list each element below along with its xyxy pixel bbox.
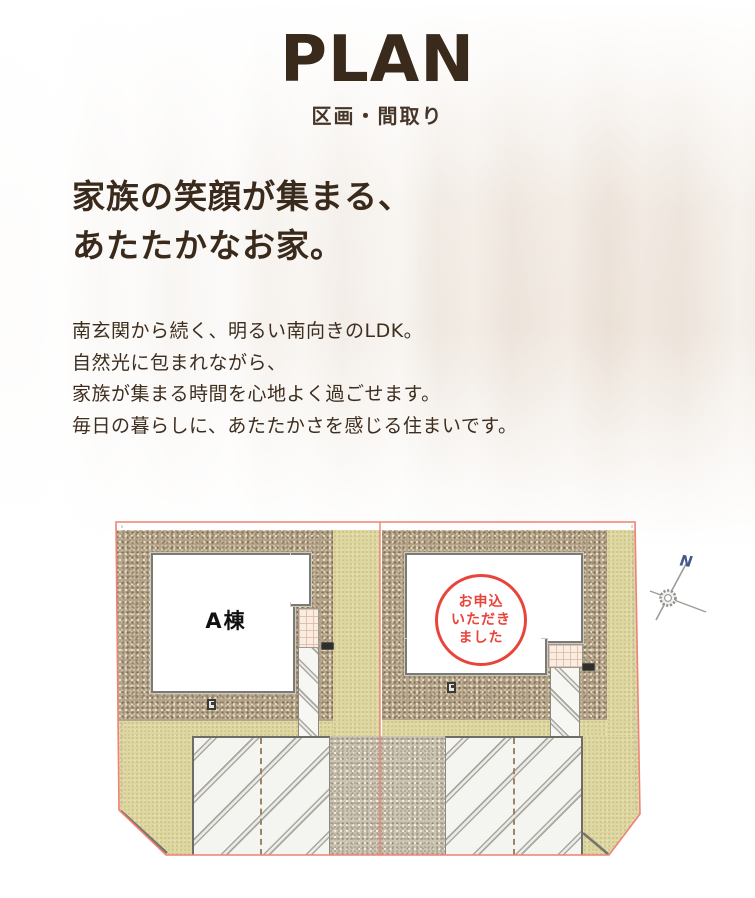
lot-a-building-seam-patch bbox=[288, 555, 294, 602]
section-header: PLAN 区画・間取り bbox=[0, 28, 755, 129]
lot-a-driveway-strip bbox=[333, 530, 380, 736]
lot-a-label-text: A棟 bbox=[205, 605, 246, 635]
stamp-line-2: いただき bbox=[451, 611, 511, 629]
intro-body-line-1: 南玄関から続く、明るい南向きのLDK。 bbox=[72, 316, 517, 348]
lot-a-label: A棟 bbox=[196, 606, 256, 634]
lot-a-garden-area bbox=[115, 736, 192, 855]
page-title: PLAN bbox=[0, 28, 755, 92]
plan-section-page: PLAN 区画・間取り 家族の笑顔が集まる、 あたたかなお家。 南玄関から続く、… bbox=[0, 0, 755, 898]
intro-heading-line-2: あたたかなお家。 bbox=[72, 221, 412, 270]
intro-heading-line-1: 家族の笑顔が集まる、 bbox=[72, 172, 412, 221]
stamp-line-3: ました bbox=[459, 629, 504, 647]
lot-b-utility-box-icon bbox=[447, 682, 456, 693]
lot-b-application-received-stamp: お申込 いただき ました bbox=[435, 574, 527, 666]
lot-a-utility-meter bbox=[321, 642, 334, 650]
site-plan-regions: A棟 お申込 いただき ました bbox=[112, 518, 642, 862]
lot-b-parking-stall-divider bbox=[513, 738, 515, 855]
north-compass-icon: N bbox=[646, 548, 712, 632]
lot-b-entrance-porch bbox=[548, 644, 583, 668]
site-plan-diagram: A棟 お申込 いただき ました bbox=[112, 518, 642, 862]
page-subtitle: 区画・間取り bbox=[0, 100, 755, 129]
lot-b-gravel-strip-bottom bbox=[380, 736, 445, 855]
intro-body: 南玄関から続く、明るい南向きのLDK。 自然光に包まれながら、 家族が集まる時間… bbox=[72, 316, 517, 442]
lot-a-parking-stall-divider bbox=[260, 738, 262, 855]
lot-b-garden-area bbox=[583, 736, 640, 855]
lot-a-gravel-strip-bottom bbox=[330, 736, 380, 855]
lot-b-approach-path bbox=[550, 668, 580, 736]
stamp-line-1: お申込 bbox=[459, 593, 504, 611]
lot-a-building-extension bbox=[291, 553, 311, 606]
intro-heading: 家族の笑顔が集まる、 あたたかなお家。 bbox=[72, 172, 412, 270]
intro-body-line-2: 自然光に包まれながら、 bbox=[72, 348, 517, 380]
lot-b-utility-meter bbox=[582, 663, 595, 671]
intro-body-line-4: 毎日の暮らしに、あたたかさを感じる住まいです。 bbox=[72, 411, 517, 443]
lot-a-approach-path bbox=[298, 648, 319, 736]
intro-body-line-3: 家族が集まる時間を心地よく過ごせます。 bbox=[72, 379, 517, 411]
compass-north-label: N bbox=[679, 552, 694, 572]
lot-a-entrance-porch bbox=[298, 608, 319, 648]
lot-a-utility-box-icon bbox=[207, 699, 216, 710]
